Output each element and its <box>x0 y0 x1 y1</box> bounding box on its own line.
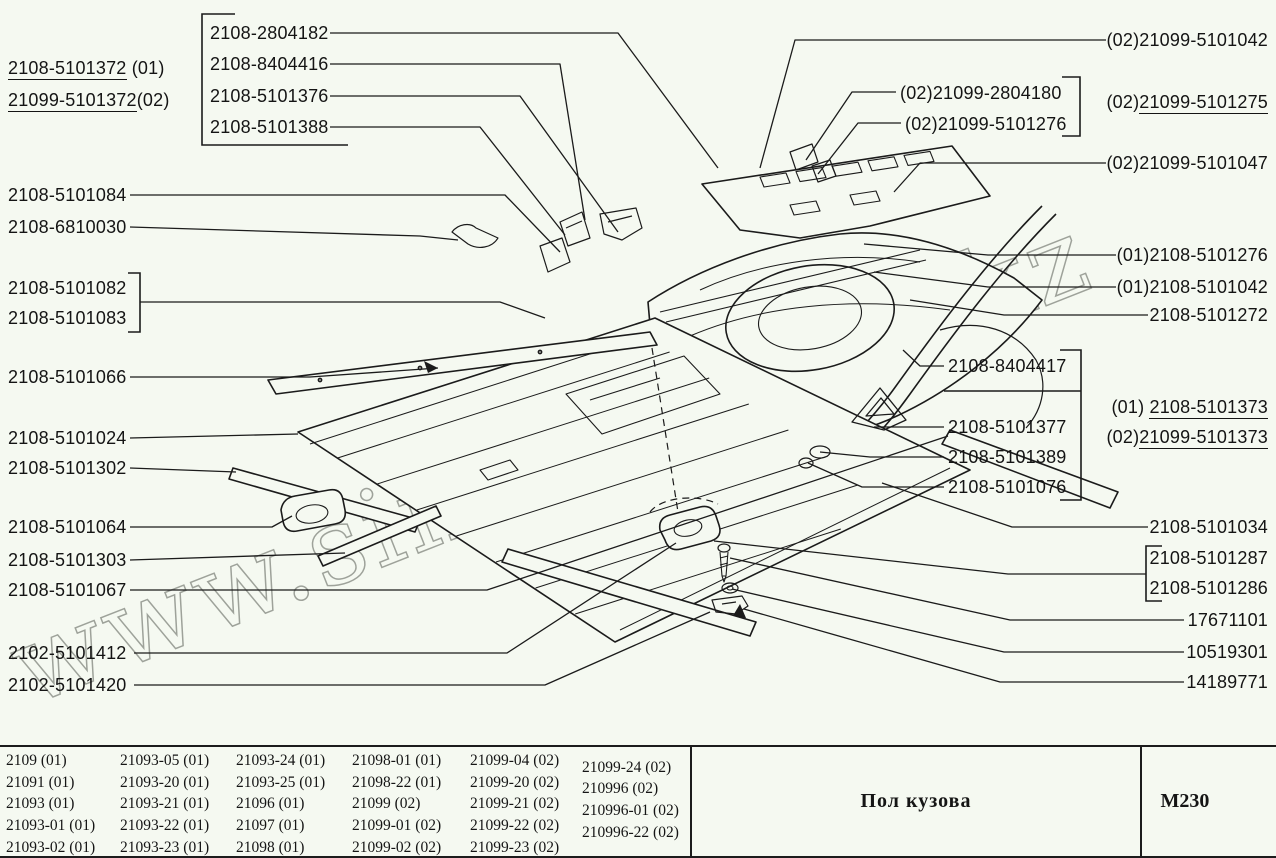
model-cell: 21099-20 (02) <box>470 772 582 794</box>
part-label: 2108-5101083 <box>8 309 127 327</box>
part-label: 2108-5101082 <box>8 279 127 297</box>
part-label: 2108-8404416 <box>210 55 329 73</box>
model-cell: 21099-21 (02) <box>470 793 582 815</box>
part-label: (02)21099-2804180 <box>900 84 1062 102</box>
model-list: 2109 (01) 21091 (01) 21093 (01) 21093-01… <box>0 747 690 856</box>
model-column: 21093-05 (01) 21093-20 (01) 21093-21 (01… <box>120 750 236 856</box>
model-cell: 21091 (01) <box>6 772 120 794</box>
model-cell: 21096 (01) <box>236 793 352 815</box>
model-cell: 21099-24 (02) <box>582 757 686 779</box>
model-cell: 21098-22 (01) <box>352 772 470 794</box>
model-cell: 21093 (01) <box>6 793 120 815</box>
part-label: 2108-2804182 <box>210 24 329 42</box>
model-cell: 21093-02 (01) <box>6 837 120 858</box>
part-label: (01)2108-5101276 <box>1117 246 1268 264</box>
part-label: 2108-5101067 <box>8 581 127 599</box>
model-cell: 21099-01 (02) <box>352 815 470 837</box>
model-cell: 21093-01 (01) <box>6 815 120 837</box>
part-label: 21099-5101372(02) <box>8 91 170 109</box>
model-cell: 21093-23 (01) <box>120 837 236 858</box>
part-label: 2108-5101303 <box>8 551 127 569</box>
part-label: (02)21099-5101047 <box>1106 154 1268 172</box>
model-column: 21099-24 (02) 210996 (02) 210996-01 (02)… <box>582 750 686 856</box>
model-cell: 21093-25 (01) <box>236 772 352 794</box>
model-cell: 21093-22 (01) <box>120 815 236 837</box>
part-label: 2108-5101064 <box>8 518 127 536</box>
model-cell: 210996-22 (02) <box>582 822 686 844</box>
model-column: 21093-24 (01) 21093-25 (01) 21096 (01) 2… <box>236 750 352 856</box>
model-cell: 21099-22 (02) <box>470 815 582 837</box>
model-cell: 21099-02 (02) <box>352 837 470 858</box>
part-label: 2108-8404417 <box>948 357 1067 375</box>
part-label: 2108-5101034 <box>1149 518 1268 536</box>
model-cell: 21098-01 (01) <box>352 750 470 772</box>
part-label: 2108-5101377 <box>948 418 1067 436</box>
part-label: 2108-6810030 <box>8 218 127 236</box>
part-label: 2102-5101412 <box>8 644 127 662</box>
model-cell: 21097 (01) <box>236 815 352 837</box>
part-label: 2108-5101372 (01) <box>8 59 165 77</box>
part-label: 17671101 <box>1188 611 1268 629</box>
part-label: (01)2108-5101042 <box>1117 278 1268 296</box>
part-label: 2108-5101272 <box>1149 306 1268 324</box>
model-cell: 21099-23 (02) <box>470 837 582 858</box>
part-label: 2108-5101084 <box>8 186 127 204</box>
part-label: 2108-5101076 <box>948 478 1067 496</box>
model-cell: 210996 (02) <box>582 778 686 800</box>
catalog-page: www.sinhron.too.kz <box>0 0 1276 858</box>
model-cell: 21099-04 (02) <box>470 750 582 772</box>
model-cell: 2109 (01) <box>6 750 120 772</box>
part-label: 2108-5101302 <box>8 459 127 477</box>
part-label: (02)21099-5101373 <box>1106 428 1268 446</box>
model-cell: 21093-20 (01) <box>120 772 236 794</box>
model-cell: 21099 (02) <box>352 793 470 815</box>
model-column: 21099-04 (02) 21099-20 (02) 21099-21 (02… <box>470 750 582 856</box>
part-label: (01) 2108-5101373 <box>1111 398 1268 416</box>
part-label: 2108-5101388 <box>210 118 329 136</box>
part-label: 10519301 <box>1186 643 1268 661</box>
model-column: 2109 (01) 21091 (01) 21093 (01) 21093-01… <box>6 750 120 856</box>
part-label: (02)21099-5101042 <box>1106 31 1268 49</box>
part-label: 2108-5101066 <box>8 368 127 386</box>
part-label: (02)21099-5101276 <box>905 115 1067 133</box>
applicability-table: 2109 (01) 21091 (01) 21093 (01) 21093-01… <box>0 745 1276 858</box>
model-cell: 21098 (01) <box>236 837 352 858</box>
model-cell: 21093-21 (01) <box>120 793 236 815</box>
part-label: 2102-5101420 <box>8 676 127 694</box>
part-label: 2108-5101286 <box>1149 579 1268 597</box>
part-label: 2108-5101024 <box>8 429 127 447</box>
part-label: 2108-5101376 <box>210 87 329 105</box>
model-cell: 21093-05 (01) <box>120 750 236 772</box>
model-column: 21098-01 (01) 21098-22 (01) 21099 (02) 2… <box>352 750 470 856</box>
part-label: (02)21099-5101275 <box>1106 93 1268 111</box>
part-label: 2108-5101389 <box>948 448 1067 466</box>
sheet-title: Пол кузова <box>690 747 1140 856</box>
model-cell: 210996-01 (02) <box>582 800 686 822</box>
exploded-diagram: www.sinhron.too.kz <box>0 0 1276 858</box>
sheet-code: М230 <box>1140 747 1276 856</box>
part-label: 14189771 <box>1186 673 1268 691</box>
model-cell: 21093-24 (01) <box>236 750 352 772</box>
part-label: 2108-5101287 <box>1149 549 1268 567</box>
